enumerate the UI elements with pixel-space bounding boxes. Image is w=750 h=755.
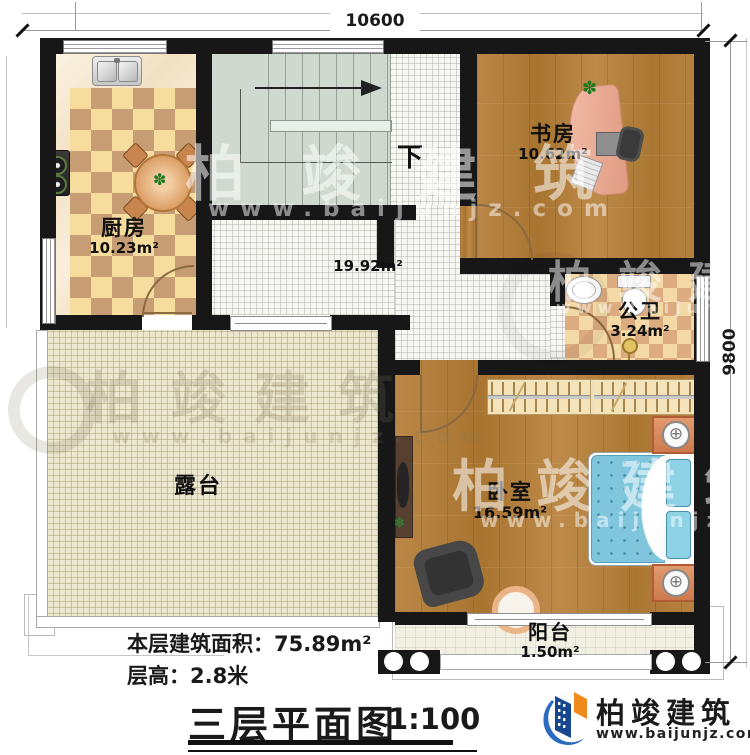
wall-hall-bottom	[330, 315, 410, 330]
balcony-label: 阳台 1.50m²	[462, 621, 638, 661]
wall-balcony-stub-left	[395, 612, 467, 625]
bed-pillow	[666, 511, 691, 559]
exterior-line-left	[6, 56, 7, 328]
balcony-column	[384, 652, 403, 671]
bed	[588, 452, 698, 566]
terrace-railing-bottom	[36, 616, 380, 628]
stair-direction-line-vertical	[240, 89, 241, 163]
floor-plan-page: ✽ ✽ ⊕ ⊕ ✽	[0, 0, 750, 755]
floor-height-text: 层高：2.8米	[127, 660, 248, 690]
wall-kitchen-bottom-b	[192, 315, 230, 330]
room-area: 19.92m²	[333, 258, 403, 275]
study-label: 书房 10.62m²	[508, 122, 598, 163]
window-kitchen-left	[42, 238, 56, 324]
wall-kitchen-stairs	[196, 54, 212, 315]
window-bathroom-right	[696, 276, 710, 362]
wardrobe-divider	[590, 380, 594, 414]
room-name: 阳台	[528, 621, 572, 644]
kitchen-label: 厨房 10.23m²	[80, 216, 168, 257]
bedroom-plant-icon: ✽	[394, 516, 405, 531]
dim-line-far-right	[746, 38, 747, 668]
window-stairs-top	[272, 40, 384, 54]
wall-balcony-stub-right	[650, 612, 694, 625]
wall-study-left	[460, 54, 477, 206]
balcony-column	[682, 652, 701, 671]
room-name: 厨房	[101, 216, 147, 240]
bedroom-monitor	[397, 462, 409, 508]
room-area: 10.62m²	[518, 146, 588, 163]
watermark-logo-ring	[498, 252, 610, 364]
stair-edge-line	[390, 54, 391, 205]
brand-logo-icon	[540, 686, 590, 746]
title-underline	[188, 740, 453, 745]
stair-arrow-shaft	[255, 87, 363, 89]
window-kitchen-top	[63, 40, 167, 54]
down-text: 下	[397, 144, 423, 174]
building-area-text: 本层建筑面积：75.89m²	[127, 628, 372, 658]
room-area: 1.50m²	[520, 644, 579, 661]
bed-pillow	[666, 459, 691, 507]
terrace-label: 露台	[164, 474, 232, 499]
stairs-down-label: 下	[392, 144, 428, 174]
room-area: 16.59m²	[473, 504, 547, 522]
wall-below-stairs	[196, 205, 416, 220]
dim-right-value: 9800	[720, 324, 740, 380]
stair-handrail	[270, 120, 392, 132]
room-name: 露台	[174, 474, 222, 499]
chair-seat	[423, 549, 475, 597]
plan-scale: 1:100	[388, 702, 480, 736]
balcony-column	[656, 652, 675, 671]
nightstand: ⊕	[652, 416, 700, 454]
table-plant-icon: ✽	[153, 170, 166, 189]
brand-website: www.baijunjz.com	[596, 726, 750, 742]
dining-set: ✽	[126, 146, 196, 216]
room-name: 书房	[530, 122, 576, 146]
terrace-outer-line-v	[28, 596, 29, 656]
nightstand: ⊕	[652, 564, 700, 602]
title-underline-thin	[188, 750, 477, 752]
wardrobe	[487, 379, 697, 415]
room-name: 公卫	[618, 300, 662, 323]
dim-ext-top-left	[75, 2, 76, 30]
balcony-column	[410, 652, 429, 671]
dim-ext-right-bottom	[705, 662, 747, 663]
bathroom-label: 公卫 3.24m²	[602, 300, 678, 340]
stair-arrow-icon	[361, 80, 382, 96]
sink-basin	[118, 61, 138, 82]
toilet-tank	[617, 275, 651, 288]
room-name: 卧室	[487, 480, 533, 504]
lamp-icon: ⊕	[662, 421, 690, 449]
wall-bedroom-left	[378, 330, 395, 622]
wall-bedroom-top-a	[395, 360, 420, 375]
kitchen-sink	[92, 56, 142, 86]
wall-bedroom-top-b	[478, 360, 710, 375]
room-area: 3.24m²	[610, 323, 669, 340]
dim-top-value: 10600	[330, 11, 420, 31]
logo-graphic	[540, 686, 590, 746]
floor-drain	[622, 338, 638, 354]
study-plant-icon: ✽	[582, 78, 597, 99]
terrace-sliding-door	[230, 316, 332, 331]
room-area: 10.23m²	[89, 240, 159, 257]
sink-faucet	[114, 58, 120, 63]
watermark-logo-ring	[8, 366, 96, 454]
hall-area-label: 19.92m²	[330, 258, 406, 275]
sink-basin	[97, 61, 117, 82]
dim-ext-top-right	[701, 2, 702, 30]
stair-direction-line-horizontal	[240, 162, 392, 163]
bedroom-label: 卧室 16.59m²	[460, 480, 560, 523]
lamp-icon: ⊕	[662, 569, 690, 597]
